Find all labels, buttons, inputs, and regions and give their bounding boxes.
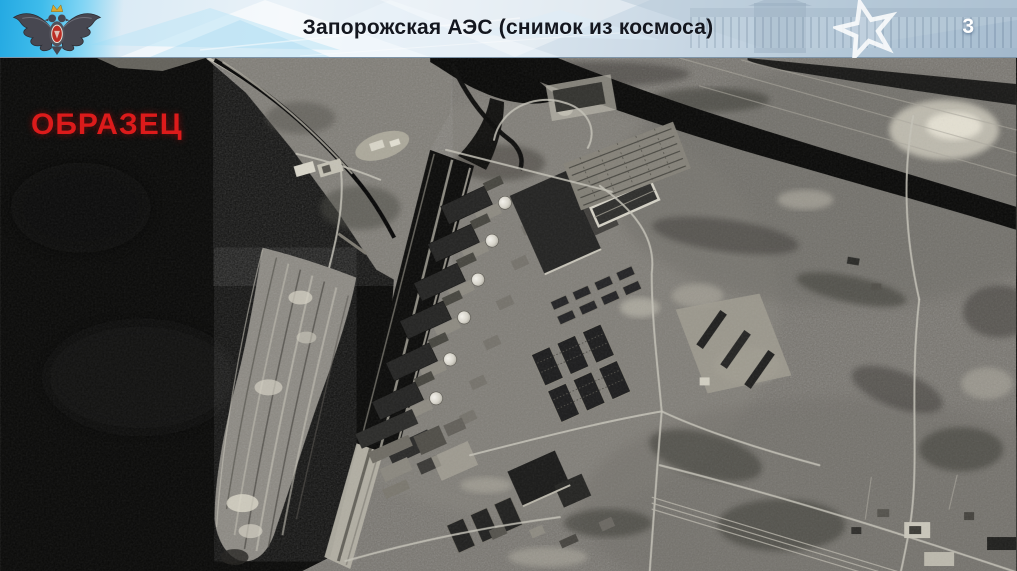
mod-eagle-icon [7, 2, 107, 56]
emblem-panel [0, 0, 136, 57]
sample-watermark: ОБРАЗЕЦ [31, 108, 183, 142]
satellite-image: ОБРАЗЕЦ [0, 58, 1017, 571]
slide-title: Запорожская АЭС (снимок из космоса) [303, 16, 714, 40]
page-number: 3 [962, 15, 974, 39]
slide: Запорожская АЭС (снимок из космоса) 3 [0, 0, 1017, 571]
slide-header: Запорожская АЭС (снимок из космоса) 3 [0, 0, 1017, 58]
army-star-icon [833, 0, 899, 59]
